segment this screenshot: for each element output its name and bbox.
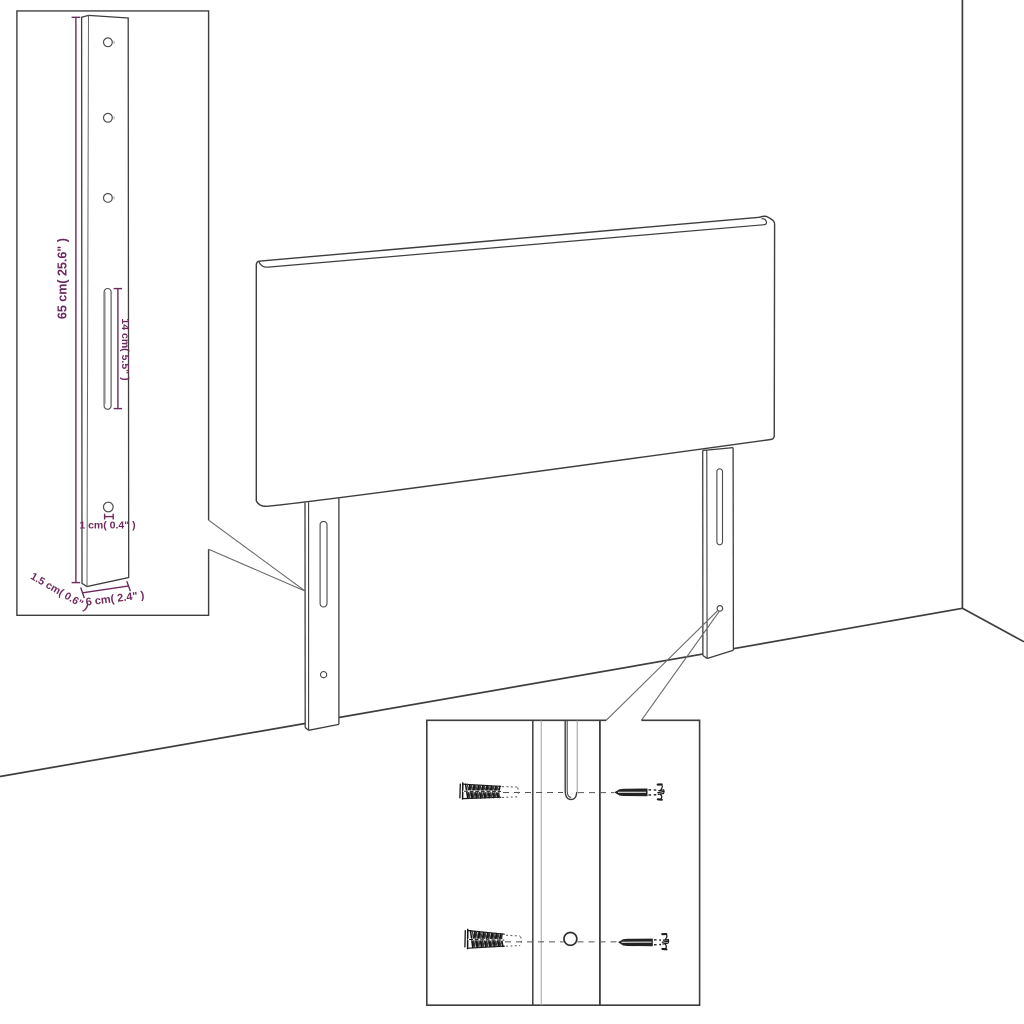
- svg-text:6 cm( 2.4" ): 6 cm( 2.4" ): [85, 589, 145, 608]
- svg-text:1 cm( 0.4" ): 1 cm( 0.4" ): [79, 520, 135, 532]
- svg-text:14 cm( 5.5" ): 14 cm( 5.5" ): [119, 318, 131, 380]
- svg-text:65 cm( 25.6" ): 65 cm( 25.6" ): [55, 238, 69, 319]
- svg-text:1.5 cm( 0.6" ): 1.5 cm( 0.6" ): [28, 570, 90, 613]
